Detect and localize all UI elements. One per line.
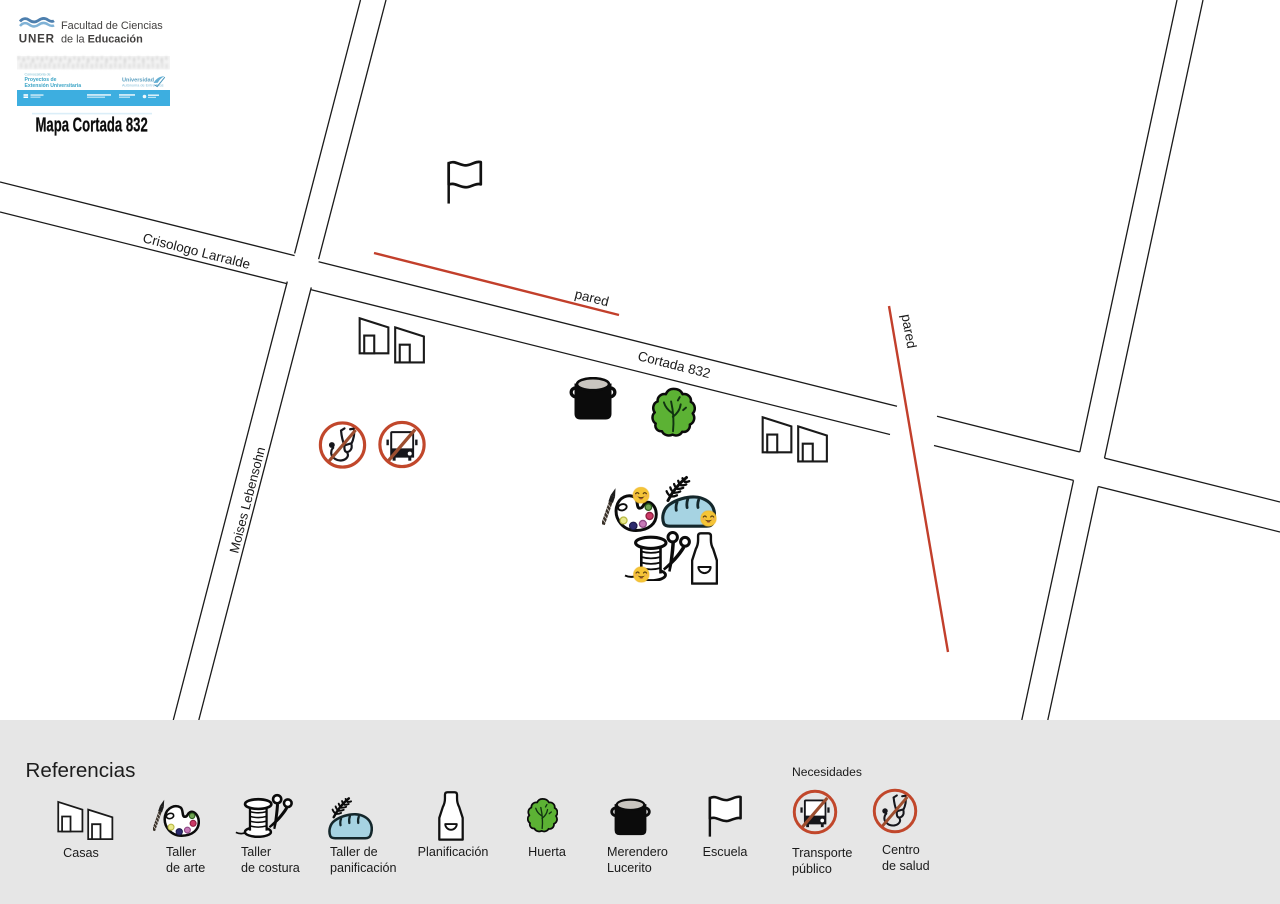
svg-text:Planificación: Planificación [418, 845, 489, 859]
svg-text:Facultad de Ciencias: Facultad de Ciencias [61, 20, 163, 32]
svg-text:Referencias: Referencias [26, 759, 136, 782]
svg-text:Taller: Taller [166, 845, 196, 859]
svg-text:de arte: de arte [166, 861, 205, 875]
svg-text:panificación: panificación [330, 861, 397, 875]
svg-text:Taller: Taller [241, 845, 271, 859]
svg-text:Convocatoria de: Convocatoria de [25, 73, 51, 77]
svg-text:de la Educación: de la Educación [61, 33, 143, 45]
svg-text:Escuela: Escuela [703, 845, 748, 859]
svg-text:Taller de: Taller de [330, 845, 378, 859]
svg-text:Moises Lebensohn: Moises Lebensohn [226, 445, 268, 554]
svg-text:Mapa Cortada 832: Mapa Cortada 832 [36, 112, 148, 136]
svg-text:Necesidades: Necesidades [792, 765, 862, 779]
svg-text:público: público [792, 862, 832, 876]
svg-text:Huerta: Huerta [528, 845, 566, 859]
svg-text:Transporte: Transporte [792, 846, 852, 860]
svg-text:Lucerito: Lucerito [607, 861, 652, 875]
svg-text:Cortada 832: Cortada 832 [636, 348, 712, 381]
svg-text:Casas: Casas [63, 846, 99, 860]
svg-text:Centro: Centro [882, 843, 920, 857]
svg-text:de salud: de salud [882, 859, 930, 873]
svg-text:pared: pared [899, 313, 920, 350]
svg-text:Extensión Universitaria: Extensión Universitaria [25, 83, 82, 89]
svg-text:UNER: UNER [19, 32, 55, 45]
svg-text:de costura: de costura [241, 861, 300, 875]
svg-text:Merendero: Merendero [607, 845, 668, 859]
